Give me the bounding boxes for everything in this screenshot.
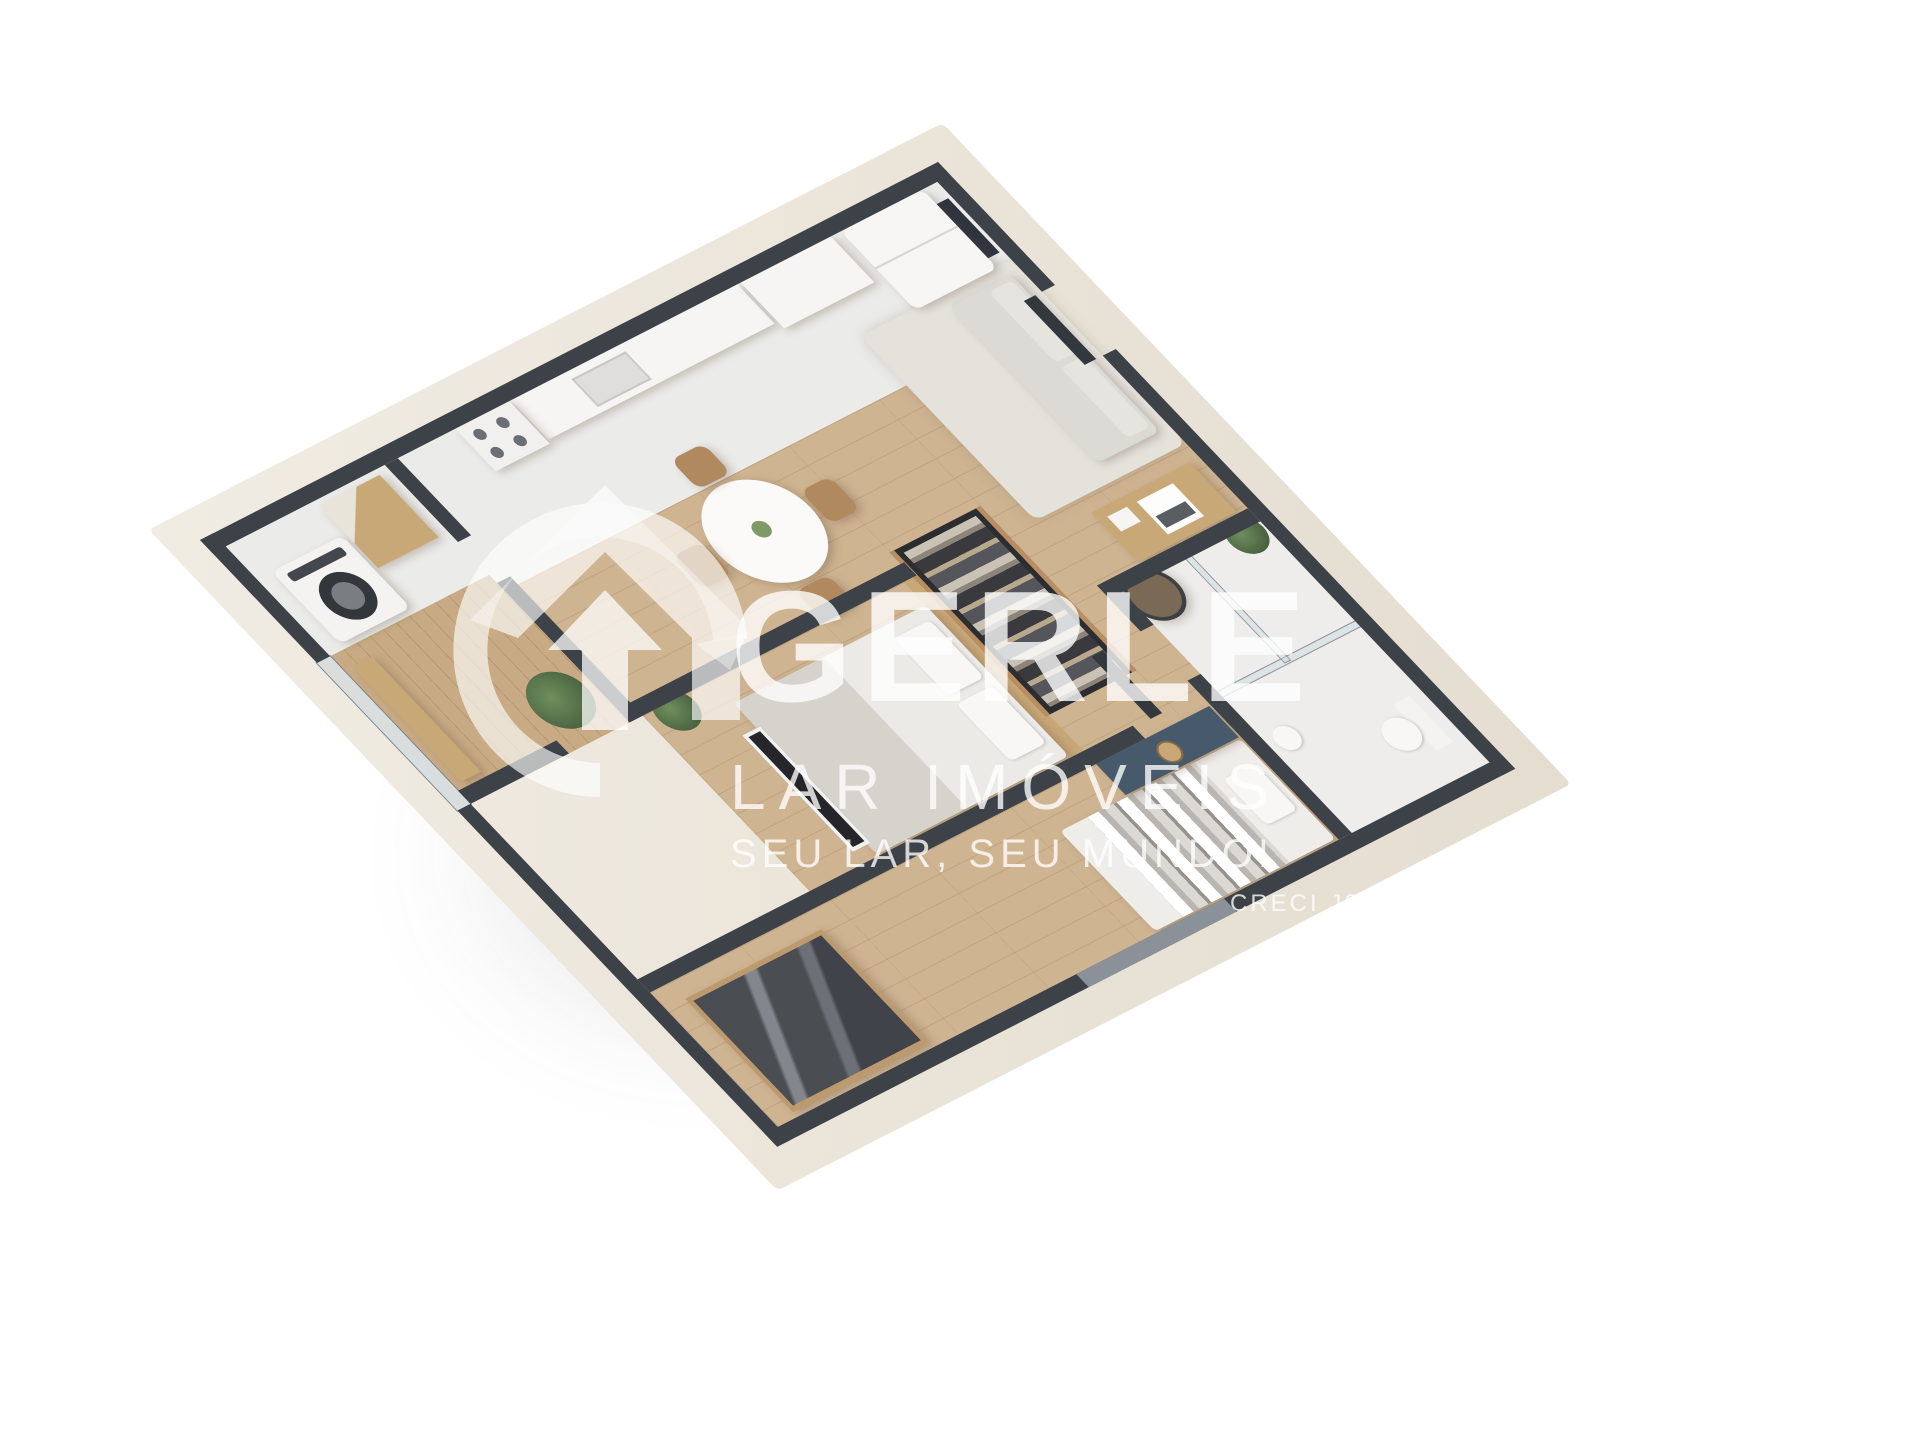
washer-door (307, 564, 390, 628)
vanity-sink-bowl (1151, 737, 1189, 767)
table-plant-vase (747, 518, 776, 540)
floorplan-3d-render: GERLE LAR IMÓVEIS SEU LAR, SEU MUNDO! CR… (0, 0, 1920, 1440)
